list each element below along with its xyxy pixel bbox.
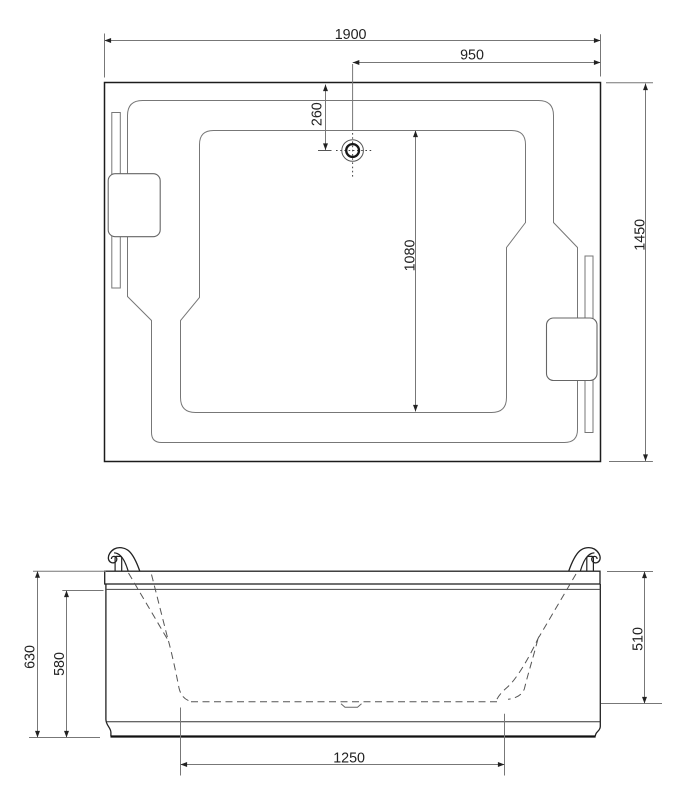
svg-text:580: 580 [52,652,68,676]
svg-text:1250: 1250 [333,750,365,766]
svg-text:260: 260 [310,102,326,126]
svg-text:1450: 1450 [632,219,648,251]
svg-text:1900: 1900 [335,27,367,43]
svg-text:510: 510 [630,627,646,651]
svg-text:1080: 1080 [402,240,418,272]
svg-text:950: 950 [460,48,484,64]
svg-text:630: 630 [23,645,39,669]
